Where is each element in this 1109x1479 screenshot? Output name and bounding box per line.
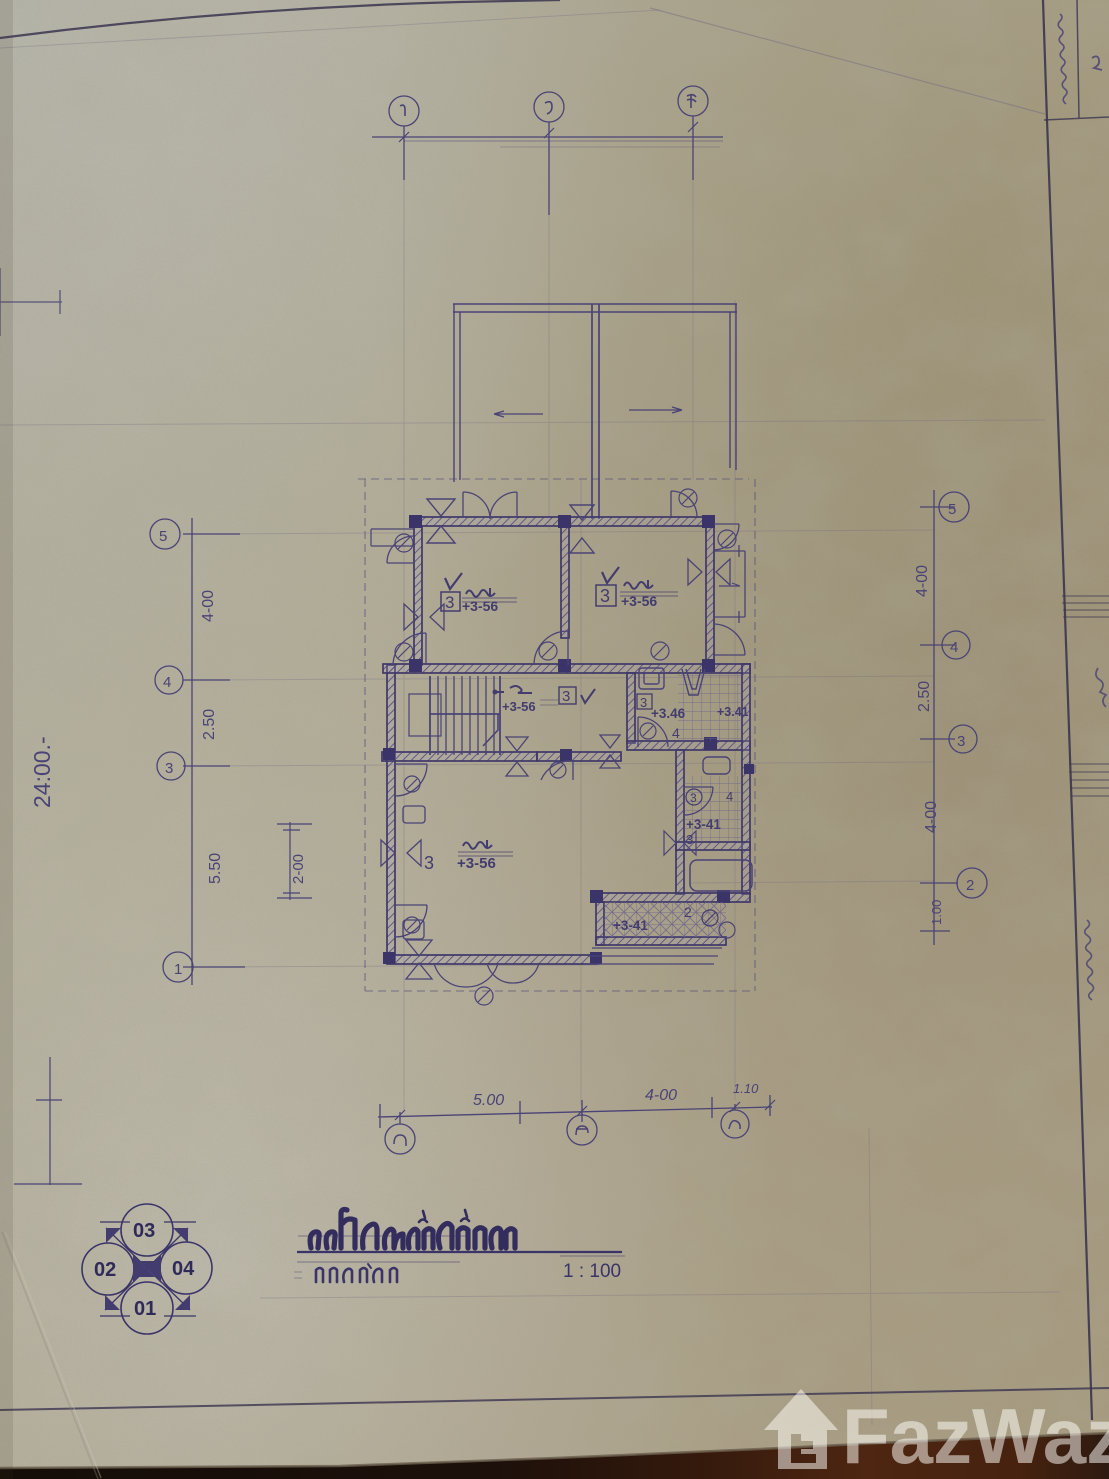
svg-text:3: 3 (562, 688, 570, 705)
svg-text:3: 3 (165, 760, 173, 777)
svg-text:+3.41: +3.41 (717, 705, 749, 719)
svg-text:01: 01 (134, 1298, 156, 1320)
svg-text:+3-56: +3-56 (502, 699, 536, 714)
svg-text:5.00: 5.00 (473, 1092, 504, 1109)
svg-text:2-00: 2-00 (290, 854, 307, 884)
svg-text:1 : 100: 1 : 100 (563, 1261, 621, 1282)
svg-text:3: 3 (957, 733, 965, 750)
svg-text:3: 3 (445, 593, 454, 612)
svg-text:4-00: 4-00 (914, 565, 931, 597)
svg-text:02: 02 (94, 1259, 116, 1281)
svg-text:4: 4 (726, 789, 733, 804)
svg-text:3: 3 (686, 832, 693, 847)
svg-text:4-00: 4-00 (645, 1087, 677, 1104)
svg-text:4: 4 (672, 725, 680, 741)
svg-text:+3-41: +3-41 (613, 918, 648, 933)
svg-text:FazWaz: FazWaz (842, 1392, 1109, 1479)
svg-text:2.50: 2.50 (916, 681, 933, 712)
svg-text:5.50: 5.50 (207, 853, 224, 884)
svg-text:3: 3 (600, 586, 610, 606)
svg-text:4: 4 (950, 639, 958, 656)
svg-text:4-00: 4-00 (200, 590, 217, 622)
svg-text:5: 5 (159, 528, 167, 545)
svg-text:03: 03 (133, 1220, 155, 1242)
svg-text:1: 1 (174, 961, 182, 978)
svg-text:2: 2 (684, 904, 692, 920)
svg-text:3: 3 (424, 853, 434, 873)
svg-text:1.10: 1.10 (733, 1081, 759, 1096)
svg-text:24:00.-: 24:00.- (29, 736, 55, 808)
svg-text:+3-56: +3-56 (462, 598, 498, 614)
svg-text:+3-56: +3-56 (621, 593, 657, 609)
svg-text:4: 4 (163, 674, 171, 691)
svg-text:+3.46: +3.46 (651, 706, 686, 721)
svg-text:5: 5 (948, 501, 956, 518)
svg-text:1.00: 1.00 (929, 900, 944, 925)
svg-text:04: 04 (172, 1258, 195, 1280)
svg-text:+3-41: +3-41 (686, 817, 721, 832)
svg-text:2.50: 2.50 (201, 709, 218, 740)
svg-text:3: 3 (640, 695, 647, 710)
svg-text:4-00: 4-00 (923, 801, 940, 833)
svg-text:3: 3 (690, 791, 697, 805)
svg-text:+3-56: +3-56 (457, 855, 496, 872)
svg-text:2: 2 (966, 877, 974, 894)
